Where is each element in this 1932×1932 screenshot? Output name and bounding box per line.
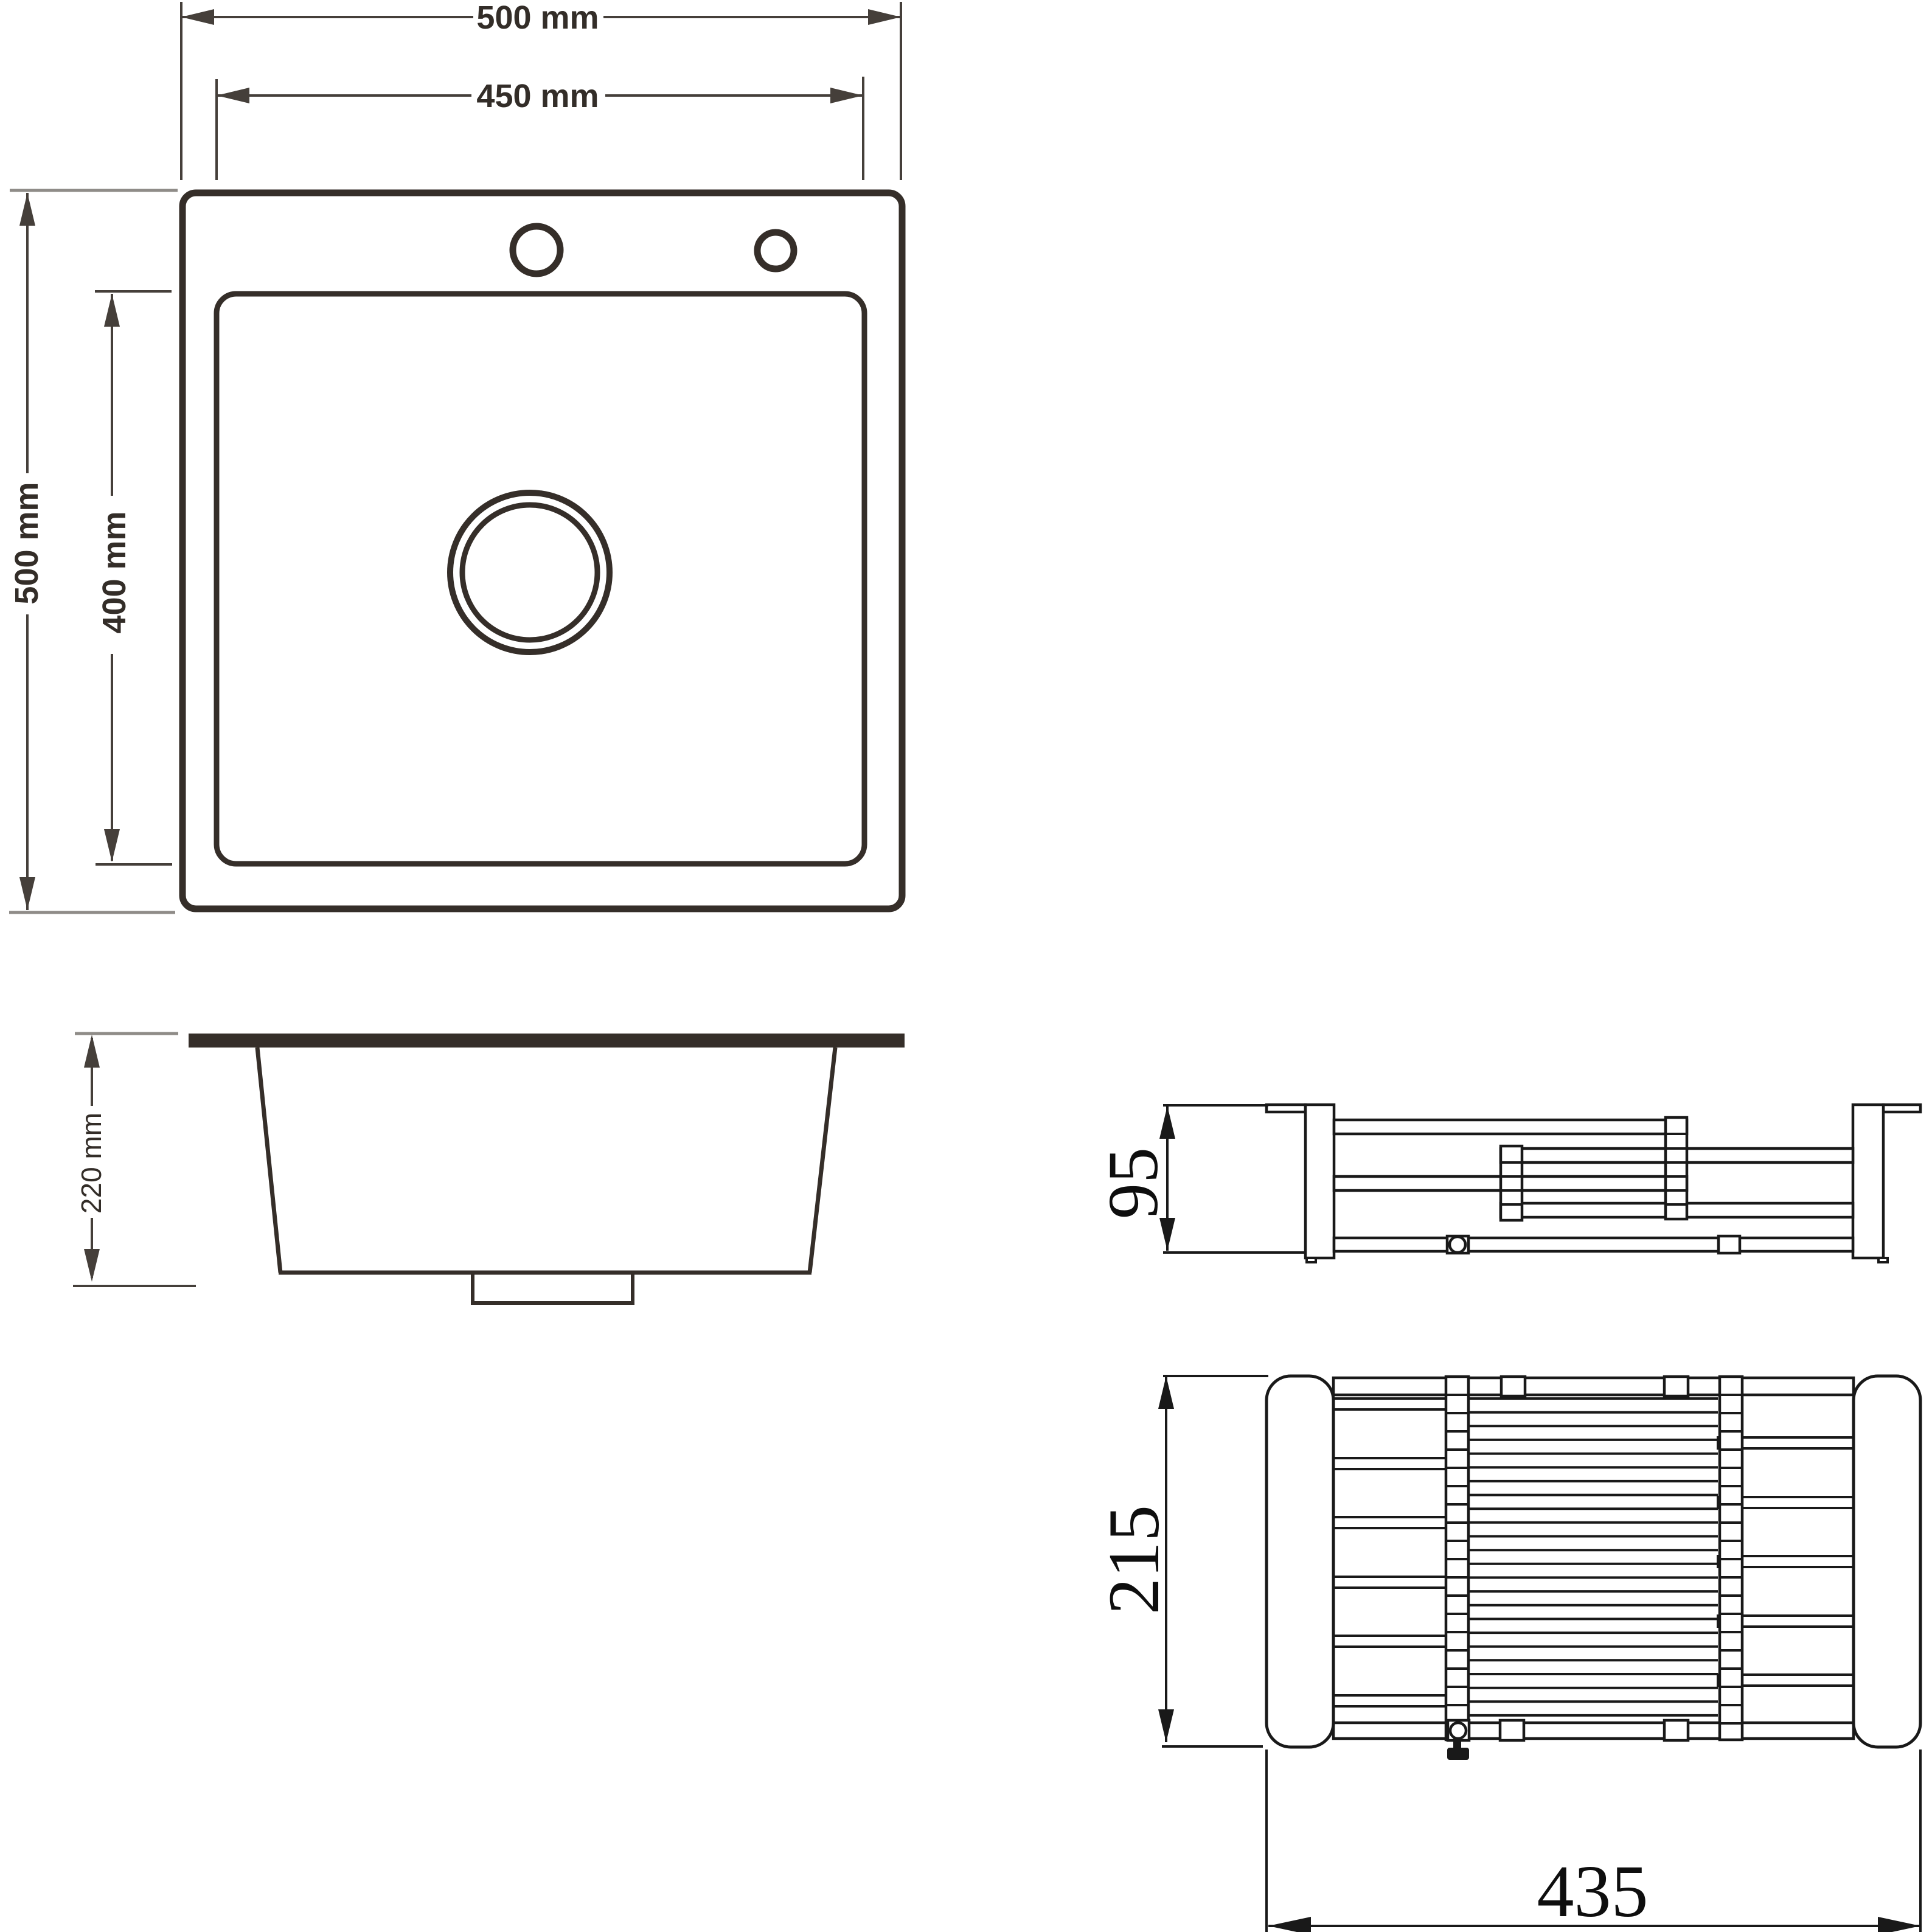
svg-text:95: 95 — [1093, 1147, 1173, 1219]
svg-text:500 mm: 500 mm — [9, 482, 45, 604]
svg-text:400 mm: 400 mm — [96, 511, 133, 633]
svg-text:435: 435 — [1537, 1850, 1649, 1932]
svg-text:215: 215 — [1093, 1505, 1174, 1614]
svg-text:450 mm: 450 mm — [476, 78, 599, 114]
svg-text:500 mm: 500 mm — [476, 0, 599, 36]
svg-text:220 mm: 220 mm — [75, 1113, 107, 1214]
